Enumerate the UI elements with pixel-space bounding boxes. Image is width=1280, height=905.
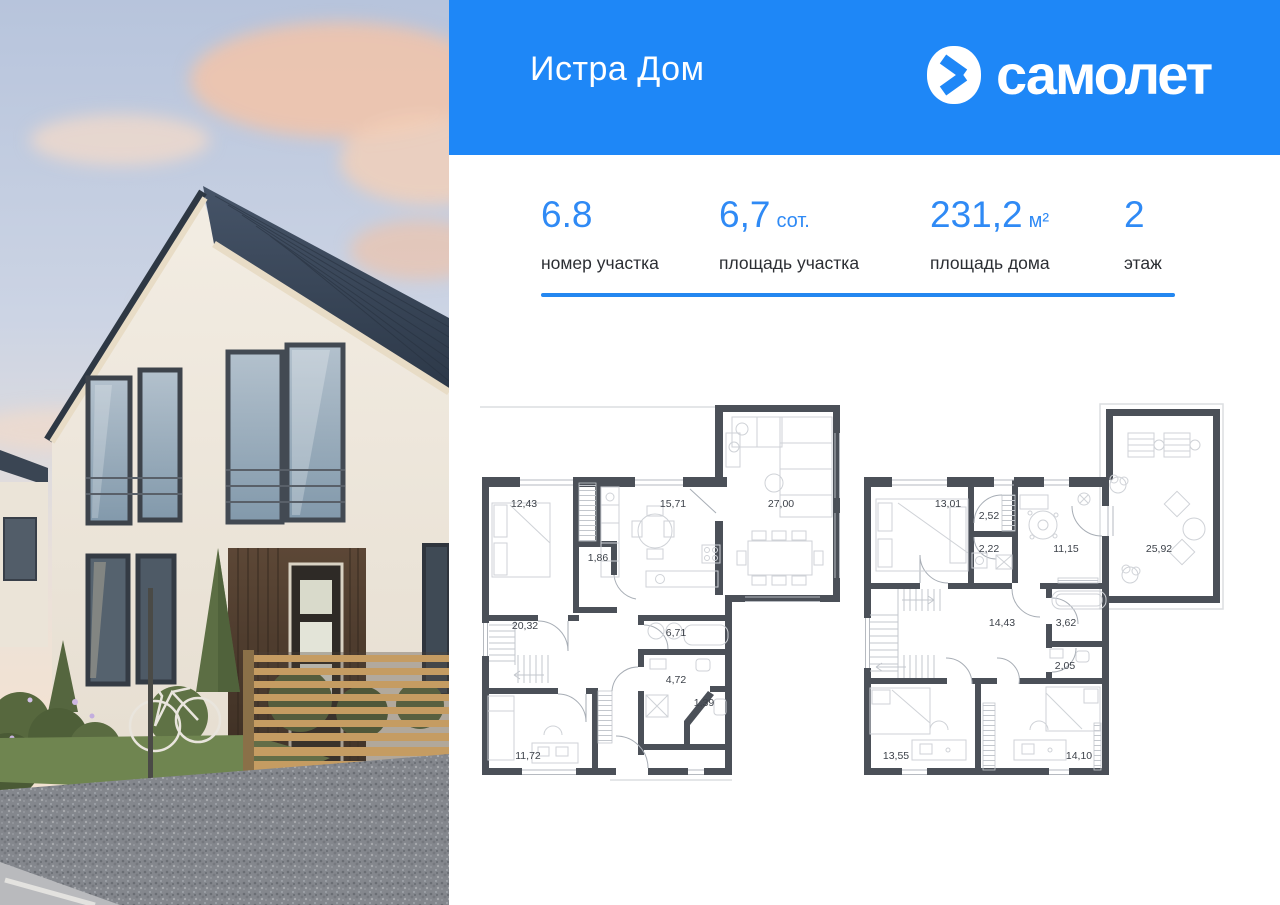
room-area-label: 11,72 [515,750,541,762]
project-title: Истра Дом [530,50,704,89]
house-photo [0,0,449,905]
room-area-label: 2,22 [979,543,1000,555]
stat-house-area: 231,2м² площадь дома [930,197,1050,274]
room-area-label: 1,39 [694,697,715,709]
stat-value: 231,2 [930,194,1023,235]
room-area-label: 14,43 [989,617,1015,629]
room-area-label: 27,00 [768,498,794,510]
stairs-floor-2 [870,589,940,678]
stat-value: 6,7 [719,194,770,235]
furniture-floor-1 [488,417,832,763]
stat-label: этаж [1124,253,1162,274]
walls-floor-2 [864,409,1220,775]
walls-floor-1 [482,405,840,775]
room-area-label: 25,92 [1146,543,1172,555]
stat-floors: 2 этаж [1124,197,1162,274]
room-area-label: 1,86 [588,552,609,564]
room-labels-floor-2: 13,01 2,52 2,22 11,15 25,92 14,43 3,62 2… [883,498,1172,762]
fence-post [148,588,153,778]
stat-unit: сот. [776,210,809,232]
brand-wordmark: самолет [996,45,1211,105]
stat-value: 6.8 [541,194,592,235]
room-area-label: 12,43 [511,498,537,510]
stats-divider [541,293,1175,297]
stat-label: площадь участка [719,253,859,274]
stat-unit: м² [1029,210,1049,232]
stat-plot-area: 6,7сот. площадь участка [719,197,859,274]
room-area-label: 14,10 [1066,750,1092,762]
floor-plan-1: 12,43 15,71 27,00 1,86 20,32 6,71 4,72 1… [480,403,844,785]
room-area-label: 20,32 [512,620,538,632]
room-area-label: 4,72 [666,674,687,686]
listing-card: Истра Дом самолет 6.8 номер участка 6,7с… [0,0,1280,905]
room-area-label: 6,71 [666,627,687,639]
room-area-label: 15,71 [660,498,686,510]
room-area-label: 2,52 [979,510,1000,522]
floor-plan-2: 13,01 2,52 2,22 11,15 25,92 14,43 3,62 2… [862,403,1224,785]
windows-floor-1 [484,433,840,775]
brand-logo: самолет [926,45,1211,105]
room-area-label: 11,15 [1053,543,1079,555]
stat-label: площадь дома [930,253,1050,274]
room-area-label: 3,62 [1056,617,1077,629]
samolet-logo-icon [926,45,982,105]
room-area-label: 13,01 [935,498,961,510]
room-area-label: 2,05 [1055,660,1076,672]
stat-plot-number: 6.8 номер участка [541,197,659,274]
stat-label: номер участка [541,253,659,274]
room-area-label: 13,55 [883,750,909,762]
stat-value: 2 [1124,194,1145,235]
